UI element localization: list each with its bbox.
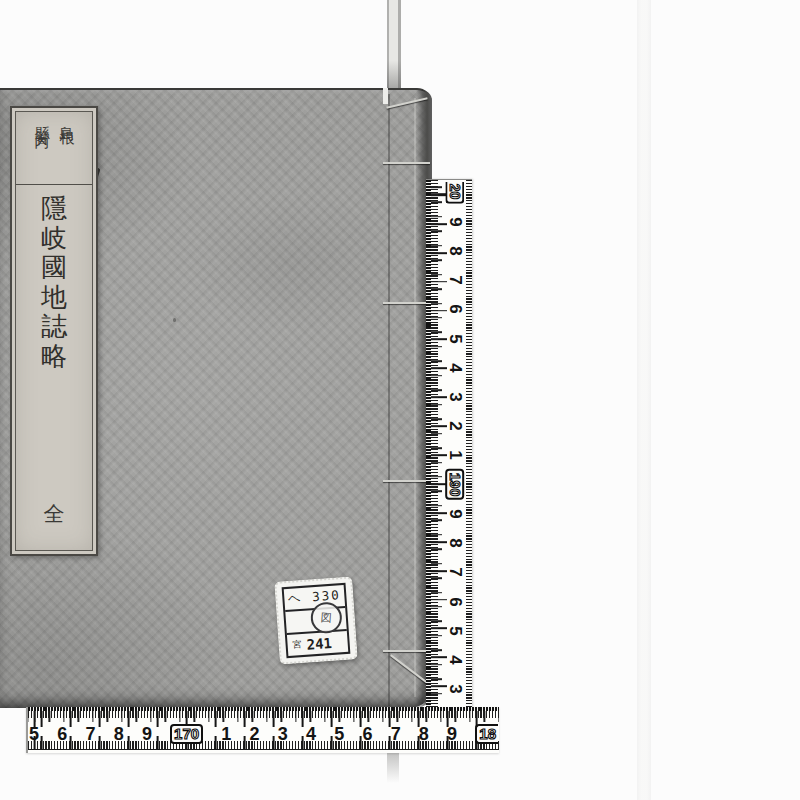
ruler-number: 3 — [446, 392, 464, 401]
ruler-number: 6 — [57, 725, 67, 744]
call-number-prefix: 宮 — [292, 638, 302, 652]
ruler-number: 7 — [446, 276, 464, 285]
vertical-ruler-mm-ticks — [431, 180, 438, 730]
binding-stitch — [383, 650, 430, 652]
hanging-tape-bottom — [387, 753, 399, 783]
ruler-number: 20 — [445, 182, 464, 204]
binding-thread-vertical — [414, 98, 416, 697]
ruler-number: 3 — [446, 684, 464, 693]
ruler-number: 170 — [170, 724, 203, 744]
scan-artifact-band — [637, 0, 651, 800]
ruler-number: 8 — [114, 725, 124, 744]
ruler-number: 6 — [446, 305, 464, 314]
vertical-ruler-numbers: 2098765432119098765432 — [442, 180, 468, 730]
spine-crease — [388, 94, 390, 706]
binding-stitch — [383, 302, 430, 304]
ruler-number: 1 — [221, 725, 231, 744]
slip-header-left-column: 縣管内 — [34, 114, 49, 180]
ruler-number: 6 — [446, 597, 464, 606]
title-character: 誌 — [41, 312, 67, 342]
ruler-number: 5 — [446, 334, 464, 343]
slip-divider-line — [16, 184, 92, 185]
ruler-number: 3 — [278, 725, 288, 744]
title-slip: 縣管内 島根 隱岐國地誌略 全 — [10, 106, 98, 556]
ruler-number: 2 — [446, 421, 464, 430]
horizontal-ruler-baseline — [28, 749, 499, 750]
horizontal-ruler-mm-ticks — [28, 711, 499, 718]
ruler-number: 9 — [446, 509, 464, 518]
ruler-number: 4 — [446, 655, 464, 664]
ruler-number: 4 — [306, 725, 316, 744]
ruler-number: 190 — [446, 469, 465, 500]
ruler-number: 7 — [446, 568, 464, 577]
ruler-number: 5 — [334, 725, 344, 744]
title-character: 隱 — [41, 194, 67, 224]
ruler-number: 7 — [391, 725, 401, 744]
title-slip-header: 縣管内 島根 — [16, 114, 92, 180]
ruler-number: 1 — [446, 450, 464, 459]
call-number-value: 241 — [306, 634, 332, 652]
call-number-row3: 宮 241 — [287, 631, 348, 656]
vertical-ruler: 2098765432119098765432 — [426, 179, 472, 730]
title-character: 略 — [41, 342, 67, 372]
ruler-number: 9 — [447, 725, 457, 744]
title-character: 國 — [41, 253, 67, 283]
hanging-tape-top — [387, 0, 401, 92]
binding-stitch — [383, 162, 430, 164]
binding-stitch — [383, 480, 430, 482]
ruler-number: 6 — [362, 725, 372, 744]
ruler-number: 9 — [446, 217, 464, 226]
ruler-number: 5 — [29, 725, 39, 744]
ruler-number: 8 — [446, 539, 464, 548]
ruler-number: 8 — [419, 725, 429, 744]
slip-header-right-column: 島根 — [59, 114, 74, 180]
archival-scan-page: 縣管内 島根 隱岐國地誌略 全 ヘ 330 宮 241 図 2 — [0, 0, 800, 800]
ruler-number: 9 — [142, 725, 152, 744]
call-number-sticker: ヘ 330 宮 241 図 — [274, 576, 358, 664]
volume-mark: 全 — [12, 500, 96, 528]
title-character: 地 — [41, 283, 67, 313]
ruler-number: 7 — [85, 725, 95, 744]
horizontal-ruler-numbers: 5678917012345678918 — [28, 723, 499, 745]
title-character: 岐 — [41, 224, 67, 254]
ruler-number: 2 — [250, 725, 260, 744]
ruler-number: 5 — [446, 626, 464, 635]
ruler-number: 18 — [475, 724, 498, 744]
ruler-number: 4 — [446, 363, 464, 372]
book-title-vertical: 隱岐國地誌略 — [12, 194, 96, 371]
horizontal-ruler: 5678917012345678918 — [26, 707, 499, 753]
book-cover: 縣管内 島根 隱岐國地誌略 全 ヘ 330 宮 241 図 — [0, 88, 432, 708]
cover-speck — [173, 318, 176, 322]
ruler-number: 8 — [446, 246, 464, 255]
spine-notch — [383, 88, 388, 104]
